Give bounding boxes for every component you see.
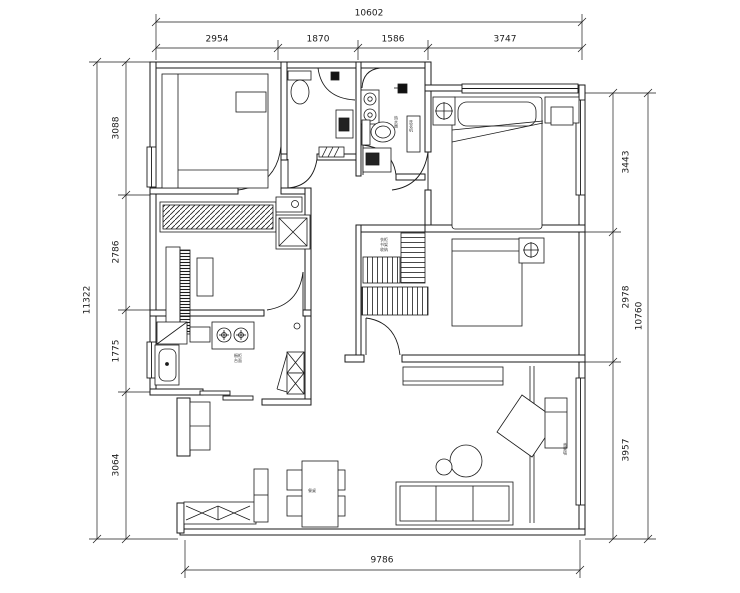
- dim-label-top-overall: 10602: [355, 10, 384, 19]
- annotation-laundry-cabinet: 洗衣机: [409, 120, 414, 132]
- dim-label-right-seg-1: 3443: [623, 151, 632, 174]
- dim-label-right-seg-3: 3957: [623, 439, 632, 462]
- living-dining-furniture: [184, 366, 567, 527]
- dim-label-top-seg-4: 3747: [494, 36, 517, 45]
- annotation-tv-wall: 背景墙: [563, 443, 568, 455]
- bedroom-2-furniture: [433, 97, 579, 229]
- bathroom-1-fixtures: [288, 71, 353, 157]
- dim-label-top-seg-3: 1586: [382, 36, 405, 45]
- annotation-bedroom4-wardrobe: 衣柜 书架 收纳: [380, 237, 388, 252]
- bedroom-4-furniture: [362, 233, 544, 326]
- bedroom-1-furniture: [162, 74, 268, 188]
- dim-label-left-seg-4: 3064: [113, 454, 122, 477]
- floor-plan-canvas: 10602 2954 1870 1586 3747 11322 3088 278…: [0, 0, 740, 593]
- dim-label-right-overall: 10760: [636, 302, 645, 331]
- annotation-dining-table: 餐桌: [308, 488, 316, 493]
- dim-label-left-seg-1: 3088: [113, 117, 122, 140]
- dim-label-left-overall: 11322: [84, 286, 93, 315]
- dim-label-left-seg-3: 1775: [113, 340, 122, 363]
- dim-label-bottom-overall: 9786: [371, 557, 394, 566]
- dim-label-top-seg-2: 1870: [307, 36, 330, 45]
- annotation-laundry-fixture: 热水器: [394, 116, 399, 128]
- annotation-kitchen: 橱柜 台面: [234, 353, 242, 363]
- dim-label-top-seg-1: 2954: [206, 36, 229, 45]
- dim-label-left-seg-2: 2786: [113, 241, 122, 264]
- dim-label-right-seg-2: 2978: [623, 286, 632, 309]
